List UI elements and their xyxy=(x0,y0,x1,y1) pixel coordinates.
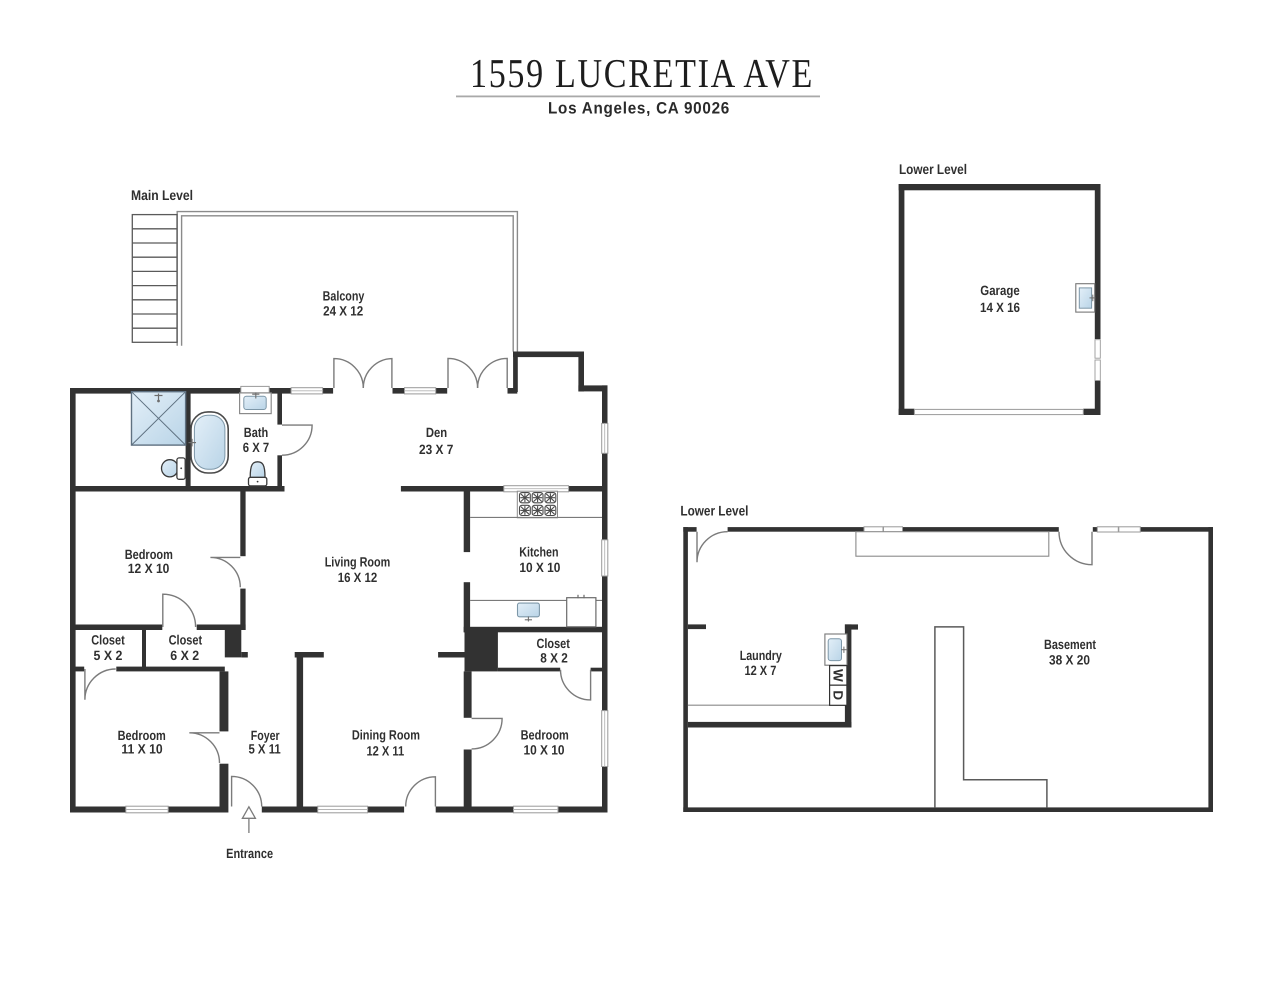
svg-text:Lower Level: Lower Level xyxy=(680,503,748,519)
svg-text:Lower Level: Lower Level xyxy=(899,161,967,177)
svg-text:Bath: Bath xyxy=(244,425,268,440)
svg-text:Closet: Closet xyxy=(91,633,125,648)
svg-text:24 X 12: 24 X 12 xyxy=(323,303,363,318)
svg-text:Living Room: Living Room xyxy=(325,555,391,570)
svg-text:10 X 10: 10 X 10 xyxy=(523,743,564,758)
svg-text:Den: Den xyxy=(426,425,447,440)
svg-text:10 X 10: 10 X 10 xyxy=(519,560,560,575)
svg-text:23 X 7: 23 X 7 xyxy=(419,442,453,457)
svg-text:12 X 10: 12 X 10 xyxy=(128,561,170,576)
svg-text:12 X 7: 12 X 7 xyxy=(744,663,776,678)
svg-text:Closet: Closet xyxy=(537,636,571,651)
svg-text:Main Level: Main Level xyxy=(131,187,193,203)
svg-text:11 X 10: 11 X 10 xyxy=(121,742,162,757)
svg-text:5 X 11: 5 X 11 xyxy=(248,742,281,757)
svg-text:5 X 2: 5 X 2 xyxy=(94,648,123,663)
svg-text:6 X 7: 6 X 7 xyxy=(243,440,269,455)
svg-text:Los Angeles, CA 90026: Los Angeles, CA 90026 xyxy=(548,100,730,118)
svg-text:8 X 2: 8 X 2 xyxy=(540,650,568,665)
svg-text:Bedroom: Bedroom xyxy=(125,547,173,562)
svg-text:Entrance: Entrance xyxy=(226,846,273,861)
svg-text:14 X 16: 14 X 16 xyxy=(980,300,1020,315)
svg-text:Balcony: Balcony xyxy=(323,288,365,303)
svg-text:Bedroom: Bedroom xyxy=(521,728,569,743)
svg-text:D: D xyxy=(831,690,846,700)
svg-text:Garage: Garage xyxy=(980,283,1020,298)
svg-text:1559 LUCRETIA AVE: 1559 LUCRETIA AVE xyxy=(470,50,814,96)
svg-text:Laundry: Laundry xyxy=(740,648,783,663)
svg-text:Basement: Basement xyxy=(1044,637,1096,652)
svg-text:38 X 20: 38 X 20 xyxy=(1049,652,1090,667)
svg-text:Dining Room: Dining Room xyxy=(352,728,420,743)
svg-text:Kitchen: Kitchen xyxy=(519,544,558,559)
svg-text:16 X 12: 16 X 12 xyxy=(338,570,377,585)
svg-text:6 X 2: 6 X 2 xyxy=(170,648,199,663)
svg-text:W: W xyxy=(831,669,846,682)
svg-text:Closet: Closet xyxy=(169,633,203,648)
svg-text:12 X 11: 12 X 11 xyxy=(366,743,404,758)
